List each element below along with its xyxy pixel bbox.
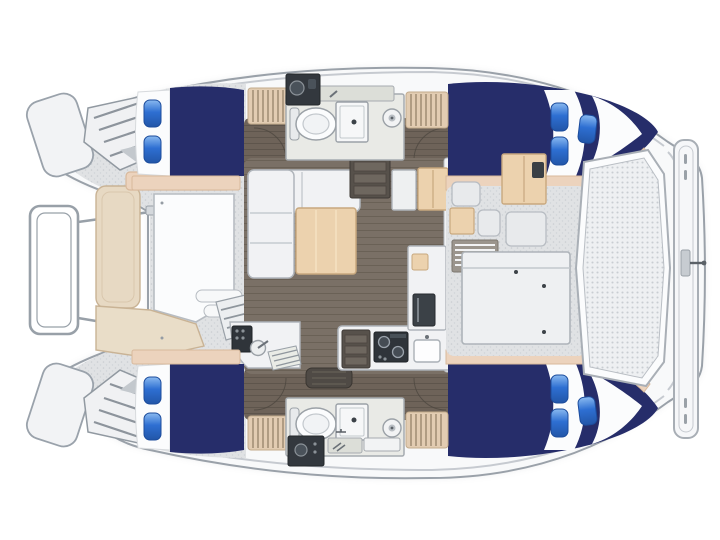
head-counter bbox=[328, 438, 362, 453]
cockpit-side-table bbox=[450, 208, 474, 234]
gate-slot bbox=[684, 398, 687, 408]
gate-slot bbox=[684, 170, 687, 180]
salon-white-cabinet bbox=[392, 170, 416, 210]
cockpit-bench-3 bbox=[506, 212, 546, 246]
pillow bbox=[577, 114, 597, 144]
deck-screw-2 bbox=[161, 337, 164, 340]
starboard-head bbox=[286, 398, 404, 466]
pillow bbox=[144, 377, 161, 404]
fridge-wood-panel bbox=[412, 254, 428, 270]
oven bbox=[232, 326, 252, 352]
pillow bbox=[551, 137, 568, 165]
cockpit-bench-1 bbox=[452, 182, 480, 206]
gate-slot bbox=[684, 414, 687, 424]
table-screw bbox=[542, 284, 546, 288]
floorplan-page bbox=[0, 0, 720, 540]
shower bbox=[336, 404, 368, 440]
mesh-deck bbox=[576, 150, 670, 386]
gate-slot bbox=[684, 154, 687, 164]
lounger-tan-rail bbox=[96, 186, 140, 308]
galley-steps bbox=[342, 330, 370, 368]
pillow bbox=[551, 409, 568, 437]
hatch-slat-panel bbox=[248, 88, 288, 124]
hatch-slat-panel bbox=[248, 416, 288, 450]
galley-sink bbox=[414, 340, 440, 362]
shower bbox=[336, 102, 368, 142]
mesh-net bbox=[583, 158, 664, 378]
hatch-slat-panel bbox=[406, 92, 448, 128]
pillow bbox=[144, 100, 161, 127]
floorplan-canvas bbox=[0, 0, 720, 540]
forward-port-berth bbox=[132, 86, 244, 190]
berth-mattress bbox=[170, 364, 244, 454]
galley-sink-faucet bbox=[425, 335, 429, 339]
pillow bbox=[144, 413, 161, 440]
head-vanity bbox=[286, 74, 320, 105]
shower-drain bbox=[383, 109, 401, 127]
hatch-slat-panel bbox=[406, 412, 448, 448]
shower-drain bbox=[383, 419, 401, 437]
cockpit-bench-2 bbox=[478, 210, 500, 236]
pillow bbox=[577, 396, 597, 426]
toilet bbox=[290, 108, 336, 140]
toilet bbox=[290, 408, 336, 440]
head-vanity bbox=[288, 436, 324, 466]
starboard-companionway-steps bbox=[306, 368, 352, 388]
pillow bbox=[551, 103, 568, 131]
salon-wood-cabinet bbox=[418, 168, 448, 210]
berth-foot-shelf bbox=[132, 176, 240, 190]
cockpit-table bbox=[462, 252, 570, 344]
head-counter bbox=[318, 86, 394, 101]
port-head bbox=[286, 74, 404, 160]
berth-mattress bbox=[170, 86, 244, 176]
table-screw bbox=[542, 330, 546, 334]
galley-stove bbox=[374, 332, 408, 362]
deck-screw-1 bbox=[161, 202, 164, 205]
wet-bar-cabinet bbox=[502, 154, 546, 204]
refrigerator-unit bbox=[408, 246, 446, 330]
fridge-window bbox=[413, 294, 435, 326]
forward-starboard-berth bbox=[132, 350, 244, 454]
berth-foot-shelf bbox=[132, 350, 240, 364]
pillow bbox=[144, 136, 161, 163]
salon-companionway-steps bbox=[350, 156, 390, 198]
pillow bbox=[551, 375, 568, 403]
head-bench bbox=[364, 438, 400, 451]
salon-table bbox=[296, 208, 356, 274]
table-screw bbox=[514, 270, 518, 274]
